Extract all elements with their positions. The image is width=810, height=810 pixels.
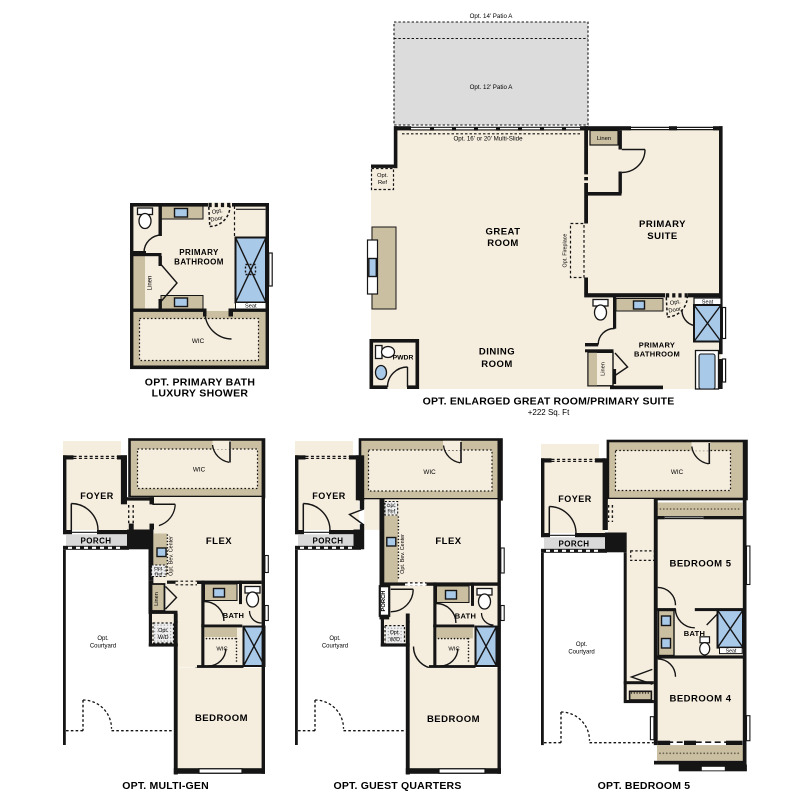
svg-text:LUXURY SHOWER: LUXURY SHOWER <box>152 388 249 400</box>
svg-text:Linen: Linen <box>597 136 611 142</box>
svg-text:FOYER: FOYER <box>558 494 592 504</box>
svg-text:OPT. GUEST QUARTERS: OPT. GUEST QUARTERS <box>333 780 461 792</box>
svg-text:ROOM: ROOM <box>487 238 519 249</box>
svg-text:Opt. Bev. Center: Opt. Bev. Center <box>169 536 175 576</box>
svg-text:Linen: Linen <box>148 276 154 291</box>
svg-text:Seat: Seat <box>726 648 737 654</box>
svg-text:BATH: BATH <box>455 612 476 621</box>
svg-text:BATH: BATH <box>223 611 244 620</box>
svg-text:ROOM: ROOM <box>481 359 513 370</box>
svg-text:Ref: Ref <box>155 571 163 577</box>
svg-text:Ref: Ref <box>387 509 395 515</box>
svg-text:OPT. MULTI-GEN: OPT. MULTI-GEN <box>122 780 209 792</box>
svg-text:PRIMARY: PRIMARY <box>179 248 219 257</box>
svg-text:BATHROOM: BATHROOM <box>174 258 224 267</box>
svg-text:BATHROOM: BATHROOM <box>634 350 680 359</box>
svg-text:DINING: DINING <box>479 347 515 358</box>
svg-text:PORCH: PORCH <box>313 537 344 546</box>
svg-text:OPT. BEDROOM 5: OPT. BEDROOM 5 <box>598 780 691 792</box>
svg-text:SUITE: SUITE <box>647 231 677 242</box>
svg-text:Opt. Fireplace: Opt. Fireplace <box>563 234 569 268</box>
svg-text:PWDR: PWDR <box>393 355 414 362</box>
svg-text:Opt. Bev. Center: Opt. Bev. Center <box>400 534 406 574</box>
svg-text:PORCH: PORCH <box>381 591 387 612</box>
svg-text:BEDROOM 5: BEDROOM 5 <box>669 559 731 570</box>
svg-text:FLEX: FLEX <box>206 536 232 547</box>
svg-text:BEDROOM: BEDROOM <box>427 714 480 725</box>
svg-text:Opt.: Opt. <box>329 636 341 642</box>
svg-text:PRIMARY: PRIMARY <box>639 341 675 350</box>
svg-text:Opt. 16' or 20' Multi-Slide: Opt. 16' or 20' Multi-Slide <box>453 136 523 143</box>
svg-text:FLEX: FLEX <box>435 536 461 547</box>
svg-text:FOYER: FOYER <box>80 491 114 501</box>
svg-text:GREAT: GREAT <box>485 227 520 238</box>
svg-text:PORCH: PORCH <box>559 540 590 549</box>
svg-text:Opt.: Opt. <box>97 636 109 642</box>
svg-text:Opt. 14' Patio A: Opt. 14' Patio A <box>470 13 514 20</box>
svg-text:Courtyard: Courtyard <box>322 644 348 650</box>
svg-text:WIC: WIC <box>671 469 684 476</box>
svg-text:WIC: WIC <box>192 338 205 345</box>
svg-text:Linen: Linen <box>154 592 160 606</box>
svg-text:Courtyard: Courtyard <box>90 644 116 650</box>
svg-text:Opt.: Opt. <box>158 628 168 634</box>
svg-text:Opt. 12' Patio A: Opt. 12' Patio A <box>470 84 514 91</box>
svg-text:WIC: WIC <box>423 469 436 476</box>
svg-text:OPT. ENLARGED GREAT ROOM/PRIMA: OPT. ENLARGED GREAT ROOM/PRIMARY SUITE <box>423 396 675 408</box>
svg-text:W/D: W/D <box>158 635 169 641</box>
svg-text:Opt.: Opt. <box>377 173 388 179</box>
svg-text:Opt.: Opt. <box>390 630 400 636</box>
svg-text:Opt.: Opt. <box>576 642 588 648</box>
svg-text:FOYER: FOYER <box>312 491 346 501</box>
svg-text:Opt.: Opt. <box>387 503 396 509</box>
svg-text:WIC: WIC <box>193 467 206 474</box>
svg-text:Linen: Linen <box>601 362 607 376</box>
svg-text:Opt.: Opt. <box>154 566 163 572</box>
svg-text:PORCH: PORCH <box>81 537 112 546</box>
svg-text:BEDROOM: BEDROOM <box>195 713 248 724</box>
svg-text:Ref: Ref <box>378 180 387 186</box>
svg-text:+222 Sq. Ft: +222 Sq. Ft <box>528 408 570 417</box>
svg-text:W/D: W/D <box>390 637 401 643</box>
svg-text:Courtyard: Courtyard <box>568 650 594 656</box>
svg-text:BEDROOM 4: BEDROOM 4 <box>669 694 731 705</box>
svg-text:PRIMARY: PRIMARY <box>639 219 686 230</box>
